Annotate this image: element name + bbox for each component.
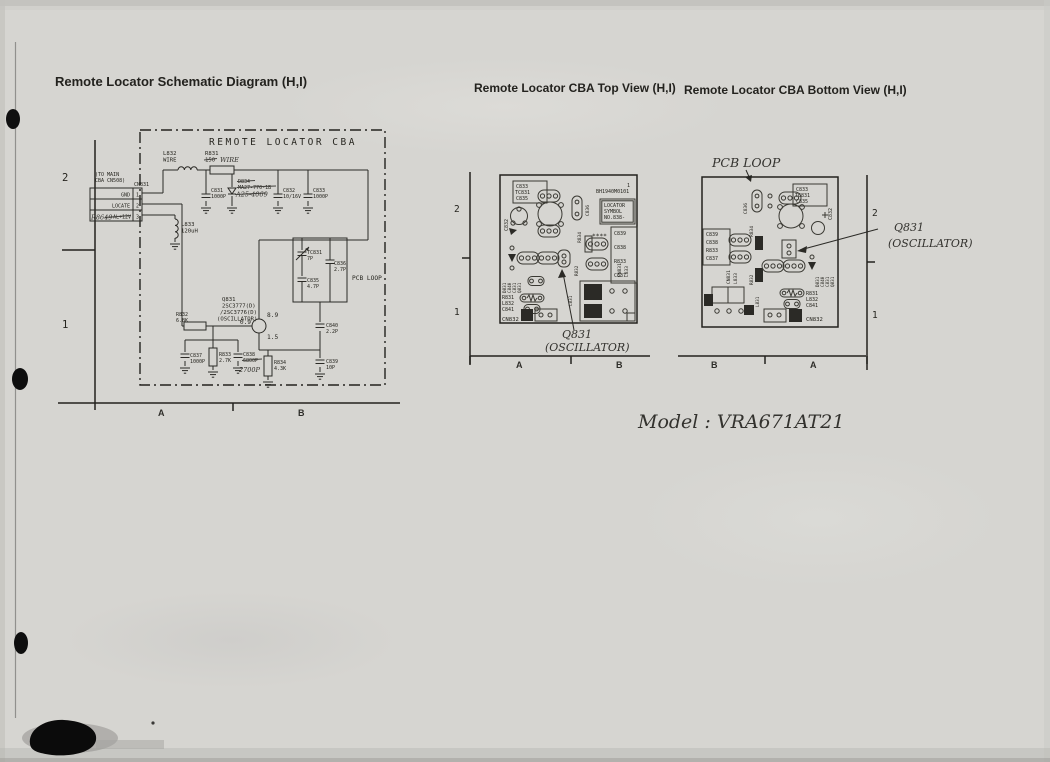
bottom-view-hand-oscillator: (OSCILLATOR)	[888, 237, 973, 250]
bottom-view-c832-label: C832	[828, 208, 834, 220]
l833-ground	[170, 244, 180, 249]
top-view-footprint-q-2	[537, 252, 559, 264]
bottom-view-hand-q831: Q831	[894, 221, 924, 234]
r831-resistor-symbol	[210, 166, 234, 174]
q831-voltage-base: 0.9	[240, 319, 251, 326]
top-view-vert-q831: Q831	[517, 282, 523, 293]
top-view-r832-label: R832	[574, 265, 580, 276]
scan-smudge	[30, 720, 96, 755]
tc831-value: 7P	[307, 256, 313, 262]
top-view-silkscreen: C833 TC831 C835 C832 C836 BH1940M0101 1 …	[502, 181, 637, 323]
top-view-cn832-label: CN832	[502, 317, 519, 323]
l832-ref: L832	[163, 151, 176, 157]
scan-blob-middle	[12, 368, 28, 390]
bottom-view-c836-footprint	[752, 190, 762, 212]
c837-cap-symbol	[181, 354, 190, 358]
q831-part1: 2SC3777(D)	[222, 304, 256, 310]
top-view-l833-label: L833	[624, 266, 630, 277]
top-view-transistor-footprint-1	[511, 208, 528, 225]
top-view-col-c839: C839	[614, 231, 626, 237]
cba-dashed-frame	[140, 130, 385, 385]
top-view-c841-label: C841	[502, 307, 514, 313]
schematic-grid-row-2: 2	[62, 172, 68, 184]
pcb-loop-annotation: PCB LOOP	[711, 155, 781, 182]
c835-cap-symbol	[298, 278, 307, 282]
c837-ground	[180, 368, 190, 373]
schematic-panel: 2 1 A B REMOTE LOCATOR CBA (TO MAIN CBA …	[58, 130, 400, 418]
top-view-diode-footprint	[508, 254, 516, 262]
c831-ground	[201, 208, 211, 213]
top-view-grid-col-b: B	[616, 360, 623, 370]
top-view-footprint-row-top	[538, 190, 560, 202]
bottom-view-electrolytic-footprint	[812, 222, 825, 235]
bottom-view-col-c837: C837	[706, 256, 718, 262]
bottom-view-dark-pad-2	[755, 268, 763, 282]
c831-cap-symbol	[202, 194, 211, 198]
r831-ref: R831	[205, 151, 218, 157]
top-view-panel: 2 1 A B C833 TC831 C835 C832 C836 BH1940…	[454, 172, 650, 370]
l833-value: 120uH	[181, 229, 198, 235]
bottom-view-r834-label: R834	[749, 226, 755, 237]
top-view-footprint-mid-2	[586, 258, 608, 270]
r833-value: 2.7K	[219, 358, 231, 364]
bottom-view-dark-pad-1	[755, 236, 763, 250]
r833-ground	[208, 372, 218, 377]
c836-value: 2.7P	[334, 267, 346, 273]
bottom-view-cn832-label: CN832	[806, 317, 823, 323]
q831-voltage-collector: 8.9	[267, 312, 278, 319]
d834-ground	[227, 208, 237, 213]
c840-value: 2.2P	[326, 329, 338, 335]
d834-diode-symbol	[228, 188, 236, 194]
top-view-cn832-body	[521, 309, 533, 321]
q831-role: (OSCILLATOR)	[217, 317, 257, 323]
bottom-view-grid-row-1: 1	[872, 310, 878, 321]
c831-value: 1000P	[211, 194, 226, 200]
page-canvas: Remote Locator Schematic Diagram (H,I) R…	[0, 0, 1050, 762]
pin3-handwritten: R8649	[90, 214, 112, 222]
q831-voltage-emitter: 1.5	[267, 334, 278, 341]
bottom-view-oscillator-annotation: Q831 (OSCILLATOR)	[797, 221, 973, 253]
top-view-cap-footprint-mid	[528, 277, 544, 286]
c833-cap-symbol	[304, 194, 313, 198]
c839-cap-symbol	[316, 360, 325, 364]
r833-resistor-symbol	[209, 348, 217, 366]
bottom-view-c836-label: C836	[743, 203, 749, 214]
top-view-pad-triangle	[509, 228, 517, 235]
bottom-view-white-block-1	[712, 287, 728, 303]
top-view-cn831-label: CN831	[617, 263, 623, 277]
bottom-view-hand-pcb-loop: PCB LOOP	[711, 155, 781, 170]
top-view-ic-part-number: BH1940M0101	[596, 189, 629, 195]
c833-value: 1000P	[313, 194, 328, 200]
c839-ground	[315, 374, 325, 379]
top-view-hand-q831: Q831	[562, 328, 592, 341]
top-view-c832-label: C832	[504, 219, 510, 231]
schematic-grid-col-a: A	[158, 408, 165, 418]
c833-ground	[303, 208, 313, 213]
l833-ref: L833	[181, 222, 194, 228]
bottom-view-dark-pad-3	[704, 294, 713, 306]
annotation-arrowhead-icon	[558, 269, 566, 278]
bottom-view-grid-col-a: A	[810, 360, 817, 370]
bottom-view-silkscreen: C833 TC831 C835 C832 C836 R834 C839 C838…	[703, 184, 836, 323]
bottom-view-cn832-pads-box	[764, 309, 786, 322]
bottom-view-r832-label: R832	[749, 274, 755, 285]
model-annotation: Model : VRA671AT21	[637, 411, 844, 433]
top-view-footprint-row-bottom	[538, 225, 560, 237]
top-view-locator-line3: NO.838-	[604, 215, 625, 221]
bottom-view-white-block-2	[728, 287, 744, 303]
scan-dot	[151, 721, 154, 724]
bottom-view-col-c838: C838	[706, 240, 718, 246]
page-title-bottom-view: Remote Locator CBA Bottom View (H,I)	[684, 83, 907, 97]
connector-ref: CN831	[134, 182, 149, 188]
schematic-grid-col-b: B	[298, 408, 305, 418]
bottom-view-c841-label: C841	[806, 303, 818, 309]
top-view-grid-col-a: A	[516, 360, 523, 370]
bottom-view-footprint-q-1	[762, 260, 784, 272]
cba-frame-label: REMOTE LOCATOR CBA	[209, 137, 357, 148]
schematic-wires	[142, 170, 368, 380]
c832-ground	[273, 208, 283, 213]
l832-value: WIRE	[163, 158, 177, 164]
top-view-ic-mark: 1	[627, 183, 630, 189]
l833-coil-symbol	[175, 219, 178, 238]
top-view-grid-row-1: 1	[454, 307, 460, 318]
q831-part2: /2SC3776(D)	[220, 310, 257, 316]
bottom-view-col-c839: C839	[706, 232, 718, 238]
c837-value: 1000P	[190, 359, 205, 365]
c832-value: 10/16V	[283, 194, 301, 200]
r834-value: 4.3K	[274, 366, 286, 372]
bottom-view-footprint-mid-1	[729, 234, 751, 246]
scan-artifacts	[0, 0, 1050, 762]
r834-resistor-symbol	[264, 356, 272, 376]
c838-cap-symbol	[234, 354, 243, 358]
top-view-col-c838: C838	[614, 245, 626, 251]
schematic-grid-row-1: 1	[62, 319, 68, 331]
r831-handwritten: WIRE	[220, 156, 239, 164]
page-title-schematic: Remote Locator Schematic Diagram (H,I)	[55, 74, 307, 89]
q831-ref: Q831	[222, 297, 235, 303]
bottom-view-l833-label: L833	[733, 273, 739, 284]
connector-note-line2: CBA CN508)	[95, 178, 125, 184]
pcb-loop-label: PCB LOOP	[352, 275, 382, 282]
l832-coil-symbol	[178, 167, 197, 170]
bottom-view-c841-footprint	[784, 300, 800, 309]
bottom-view-col-r833: R833	[706, 248, 718, 254]
c832-cap-symbol	[274, 194, 283, 198]
c839-value: 10P	[326, 365, 335, 371]
bottom-view-dark-pad-4	[744, 305, 754, 315]
bottom-view-cn832-body	[789, 309, 802, 322]
pin2-number: 2	[136, 204, 139, 210]
bottom-view-footprint-q-2	[783, 260, 805, 272]
pin1-number: 1	[136, 193, 139, 199]
pin3-number: 3	[136, 215, 139, 221]
c840-cap-symbol	[316, 324, 325, 328]
oscillator-arrowhead-icon	[797, 246, 807, 253]
top-view-r834-label: R834	[577, 232, 583, 243]
top-view-box-c835: C835	[516, 196, 528, 202]
bottom-view-vert-q831: Q831	[830, 276, 836, 287]
c838-value: 6800P	[243, 358, 258, 364]
r832-value: 6.8K	[176, 318, 188, 324]
pin1-label: GND	[121, 193, 130, 199]
top-view-hand-oscillator: (OSCILLATOR)	[545, 341, 630, 354]
c835-value: 4.7P	[307, 284, 319, 290]
c838-handwritten: 2700P	[238, 366, 261, 374]
top-view-c836-label: C836	[585, 205, 591, 216]
bottom-view-l831-label: L831	[755, 296, 761, 307]
scanned-service-manual-page: Remote Locator Schematic Diagram (H,I) R…	[0, 0, 1050, 762]
pin2-label: LOCATE	[112, 204, 130, 210]
page-title-top-view: Remote Locator CBA Top View (H,I)	[474, 81, 676, 95]
pcb-loop-arrowhead-icon	[745, 175, 752, 182]
top-view-cn832-pads-box	[535, 309, 557, 321]
bottom-view-grid-row-2: 2	[872, 208, 878, 219]
top-view-grid-row-2: 2	[454, 204, 460, 215]
bottom-view-grid-col-b: B	[711, 360, 718, 370]
scan-blob-bottom	[14, 632, 28, 654]
bottom-view-diode-footprint	[808, 262, 816, 270]
bottom-view-footprint-mid-2	[729, 251, 751, 263]
bottom-view-panel: 2 1 B A PCB LOOP C833 TC831 C835 C832	[678, 155, 973, 370]
top-view-footprint-q-1	[517, 252, 539, 264]
scan-blob-top	[6, 109, 20, 129]
bottom-view-cn831-label: CN831	[726, 270, 732, 284]
